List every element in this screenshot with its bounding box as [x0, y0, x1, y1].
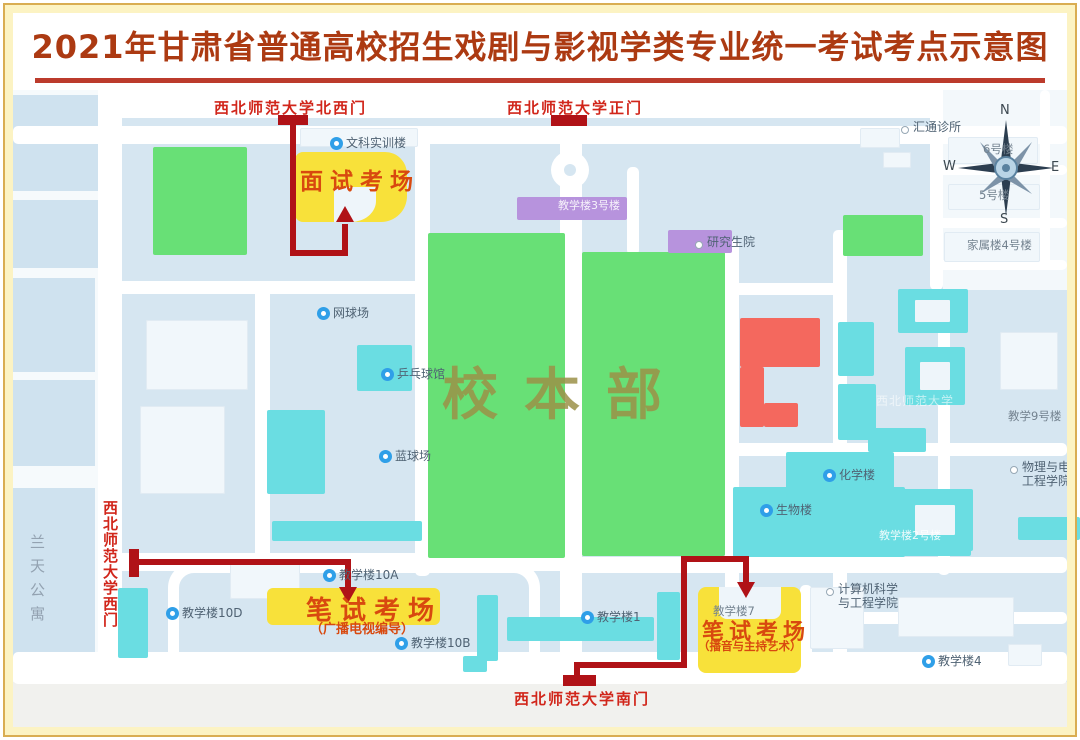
route-south-segment: [681, 556, 749, 562]
map-dot-icon: [695, 241, 703, 249]
northwest-gate-label: 西北师范大学北西门: [214, 97, 367, 118]
route-arrow-written-hosting: [737, 582, 755, 598]
map-poi-label: 5号楼: [979, 189, 1009, 202]
building: [1008, 644, 1042, 666]
building: [740, 318, 820, 367]
map-poi-label: 西北师范大学: [876, 395, 954, 409]
map-pin-icon: [379, 450, 392, 463]
building: [860, 128, 900, 148]
route-northwest-segment: [290, 250, 348, 256]
building: [267, 410, 325, 494]
route-northwest-segment: [290, 125, 296, 255]
map-poi-label: 家属楼4号楼: [967, 239, 1032, 252]
map-pin-icon: [760, 504, 773, 517]
map-poi-label: 计算机科学 与工程学院: [838, 583, 898, 611]
building: [898, 597, 1014, 637]
map-poi-label: 教学9号楼: [1008, 410, 1061, 423]
building: [140, 406, 225, 494]
compass-north-label: N: [1000, 103, 1010, 118]
page-title: 2021年甘肃省普通高校招生戏剧与影视学类专业统一考试考点示意图: [13, 22, 1067, 68]
campus-label: 校本部: [442, 350, 688, 431]
route-arrow-interview: [336, 206, 354, 222]
building: [740, 367, 764, 427]
map-dot-icon: [1010, 466, 1018, 474]
building: [272, 521, 422, 541]
route-south-segment: [681, 556, 687, 668]
sports-field: [153, 147, 247, 255]
map-pin-icon: [166, 607, 179, 620]
building: [1018, 517, 1080, 540]
map-pin-icon: [581, 611, 594, 624]
map-poi-label: 生物楼: [776, 504, 812, 518]
route-west-segment: [139, 559, 351, 565]
road: [727, 283, 847, 295]
map-poi-label: 网球场: [333, 307, 369, 321]
map-poi-label: 蓝球场: [395, 450, 431, 464]
compass-south-label: S: [1000, 212, 1008, 227]
map-dot-icon: [901, 126, 909, 134]
building: [146, 320, 248, 390]
building: [764, 403, 798, 427]
compass-east-label: E: [1051, 160, 1059, 175]
map-pin-icon: [922, 655, 935, 668]
map-pin-icon: [381, 368, 394, 381]
map-pin-icon: [823, 469, 836, 482]
offcampus-block: [13, 380, 95, 466]
building-courtyard: [920, 362, 950, 390]
map-poi-label: 教学楼10B: [411, 637, 471, 651]
building: [868, 428, 926, 452]
map-poi-label: 文科实训楼: [346, 137, 406, 151]
road: [567, 557, 1067, 573]
written-broadcast-site-subtitle: （广播电视编导）: [310, 618, 414, 637]
title-underline: [35, 78, 1045, 83]
map-poi-label: 化学楼: [839, 469, 875, 483]
offcampus-block: [13, 488, 95, 666]
main-gate-label: 西北师范大学正门: [507, 97, 643, 118]
compass-west-label: W: [943, 159, 956, 174]
building: [1000, 332, 1058, 390]
map-poi-label: 教学楼10A: [339, 569, 398, 583]
main-gate-roundabout: [551, 151, 589, 189]
building: [657, 592, 680, 660]
map-dot-icon: [826, 588, 834, 596]
map-poi-label: 教学楼4: [938, 655, 982, 669]
exam-site-map: 2021年甘肃省普通高校招生戏剧与影视学类专业统一考试考点示意图 西北师范大学北…: [0, 0, 1080, 740]
building: [883, 152, 911, 168]
building: [838, 322, 874, 376]
map-poi-label: 教学楼10D: [182, 607, 243, 621]
interview-site-label: 面试考场: [300, 162, 420, 196]
map-pin-icon: [323, 569, 336, 582]
west-gate-label: 西北师范大学西门: [100, 500, 121, 640]
compass-rose-icon: [956, 118, 1056, 218]
apartment-label: 兰天公寓: [27, 534, 48, 630]
building-courtyard: [915, 300, 950, 322]
map-poi-label: 乒乓球馆: [397, 368, 445, 382]
building: [118, 588, 148, 658]
building: [477, 595, 498, 661]
route-south-segment: [574, 662, 687, 668]
map-pin-icon: [317, 307, 330, 320]
sports-field: [843, 215, 923, 256]
written-hosting-site-subtitle: （播音与主持艺术）: [698, 638, 802, 654]
map-poi-label: 教学楼3号楼: [558, 200, 620, 213]
map-poi-label: 研究生院: [707, 236, 755, 250]
map-poi-label: 汇通诊所: [913, 121, 961, 135]
map-poi-label: 教学楼2号楼: [879, 530, 941, 543]
offcampus-block: [13, 278, 95, 372]
west-gate-marker: [129, 549, 139, 577]
route-northwest-segment: [342, 224, 348, 256]
map-pin-icon: [330, 137, 343, 150]
south-gate-label: 西北师范大学南门: [514, 688, 650, 709]
route-south-segment: [743, 560, 749, 584]
building: [733, 487, 905, 557]
map-poi-label: 教学楼1: [597, 611, 641, 625]
building: [463, 656, 487, 672]
road: [627, 167, 639, 255]
map-pin-icon: [395, 637, 408, 650]
offcampus-block: [13, 200, 98, 268]
map-poi-label: 物理与电 工程学院: [1022, 461, 1070, 489]
map-poi-label: 6号楼: [983, 143, 1013, 156]
